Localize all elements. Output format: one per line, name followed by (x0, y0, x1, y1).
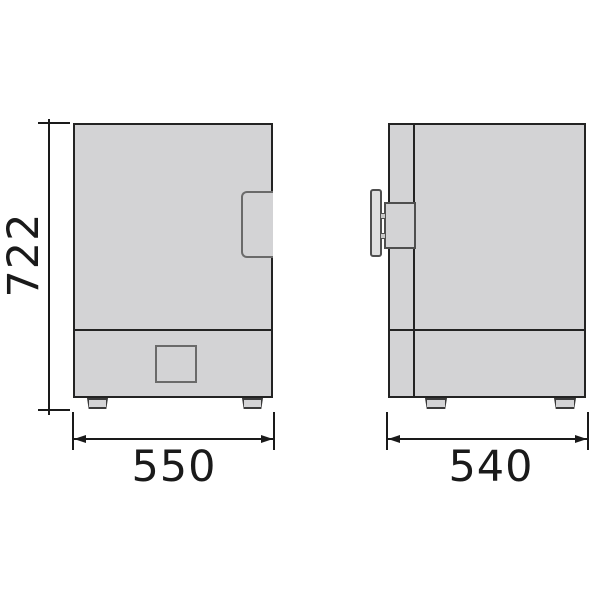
side-panel-divider-line (388, 329, 586, 331)
side-door-edge-line (413, 123, 415, 398)
height-extension-tick-top (38, 122, 70, 124)
width-arrowhead-left (74, 435, 86, 443)
side-view-body (388, 123, 586, 398)
width-dimension-label: 550 (109, 445, 239, 489)
front-panel-divider-line (73, 329, 273, 331)
side-right-foot (554, 398, 576, 409)
side-left-foot (425, 398, 447, 409)
depth-dimension-label: 540 (426, 445, 556, 489)
depth-extension-line-left (386, 412, 388, 450)
front-panel-square (155, 345, 197, 383)
height-dimension-label: 722 (2, 190, 46, 320)
front-right-foot (242, 398, 263, 409)
depth-arrowhead-right (575, 435, 587, 443)
depth-dimension-line (386, 438, 589, 440)
side-handle-bracket (384, 202, 416, 249)
front-left-foot (87, 398, 108, 409)
width-extension-line-left (72, 412, 74, 450)
depth-extension-line-right (587, 412, 589, 450)
side-handle-pin-bottom (380, 233, 386, 239)
width-dimension-line (72, 438, 275, 440)
height-extension-tick-bottom (38, 409, 70, 411)
depth-arrowhead-left (388, 435, 400, 443)
door-handle-recess (241, 191, 273, 258)
width-arrowhead-right (261, 435, 273, 443)
side-handle-bar (370, 189, 382, 257)
width-extension-line-right (273, 412, 275, 450)
dimension-drawing: 722 550 540 (0, 0, 600, 600)
side-handle-pin-top (380, 213, 386, 219)
